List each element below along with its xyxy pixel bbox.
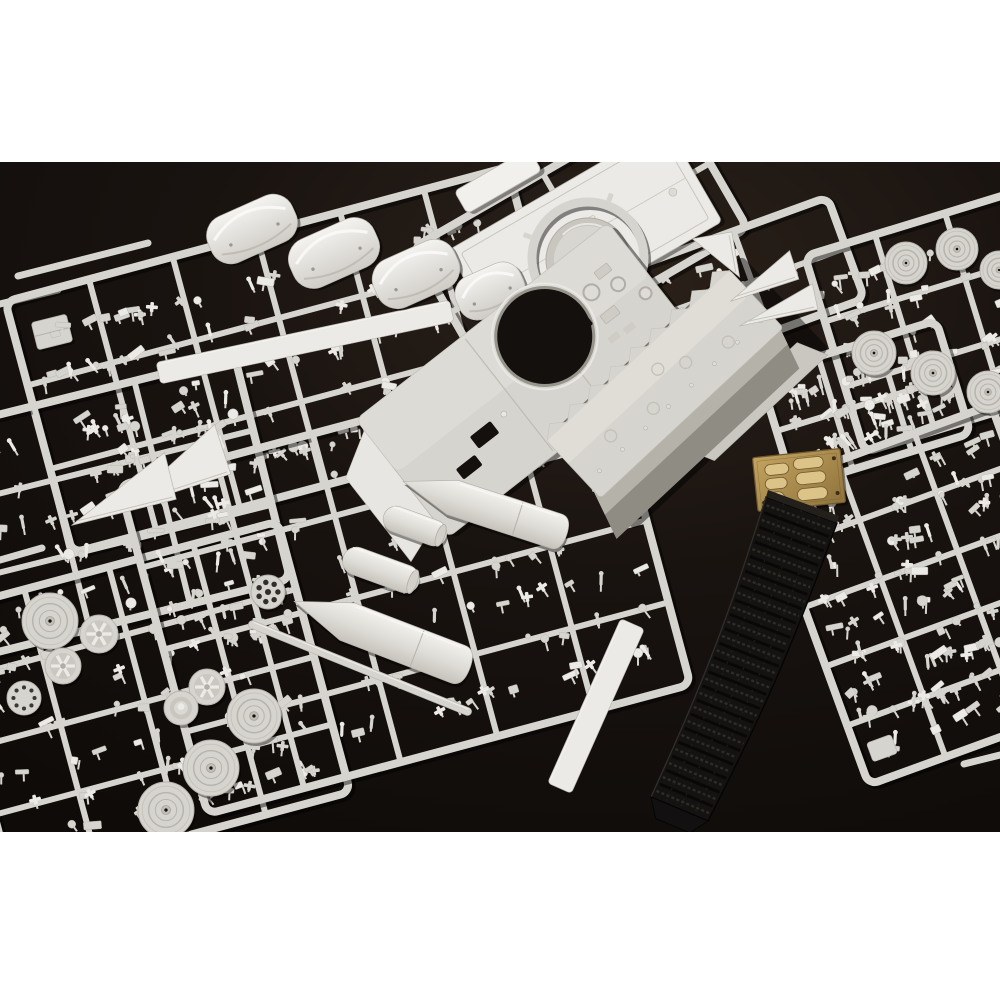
kit-photo-svg bbox=[0, 0, 1000, 1000]
bottom-letterbox bbox=[0, 832, 1000, 1000]
top-letterbox bbox=[0, 0, 1000, 162]
photo-area bbox=[0, 97, 1000, 885]
model-kit-sprues-photo bbox=[0, 0, 1000, 1000]
